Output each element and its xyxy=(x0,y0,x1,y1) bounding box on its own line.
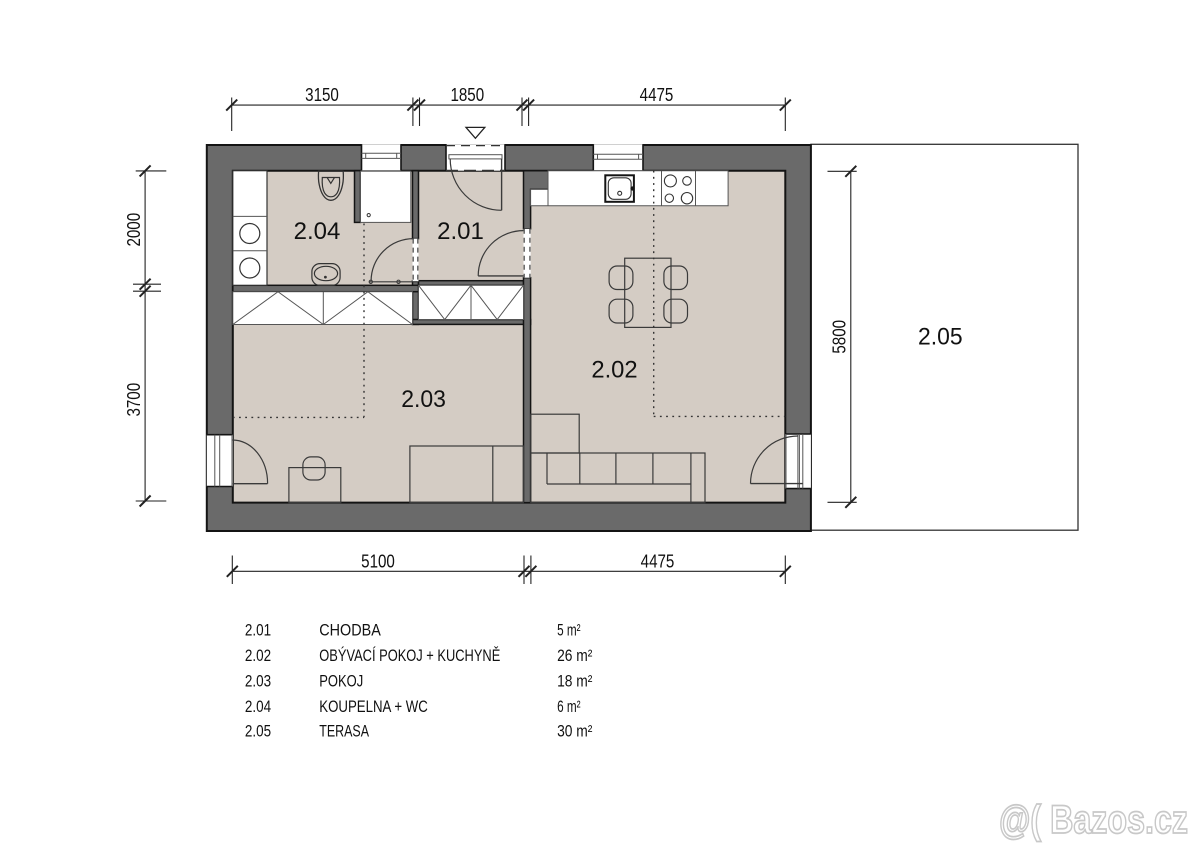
svg-text:3700: 3700 xyxy=(124,383,144,417)
svg-text:2.03: 2.03 xyxy=(401,386,446,413)
svg-text:2.01: 2.01 xyxy=(437,218,484,245)
svg-text:2.04: 2.04 xyxy=(245,698,271,716)
svg-text:2000: 2000 xyxy=(124,213,144,247)
svg-text:OBÝVACÍ POKOJ + KUCHYNĚ: OBÝVACÍ POKOJ + KUCHYNĚ xyxy=(319,646,500,665)
svg-text:1850: 1850 xyxy=(450,85,484,105)
svg-text:3150: 3150 xyxy=(305,85,339,105)
svg-text:6 m²: 6 m² xyxy=(557,698,581,716)
svg-text:2.04: 2.04 xyxy=(294,218,341,245)
svg-text:@( Bazos.cz: @( Bazos.cz xyxy=(999,798,1188,842)
svg-text:2.02: 2.02 xyxy=(245,647,271,665)
svg-text:CHODBA: CHODBA xyxy=(319,622,381,640)
svg-text:2.02: 2.02 xyxy=(591,356,637,383)
svg-text:KOUPELNA + WC: KOUPELNA + WC xyxy=(319,698,428,716)
svg-text:5100: 5100 xyxy=(361,551,395,571)
svg-text:POKOJ: POKOJ xyxy=(319,673,363,691)
svg-text:4475: 4475 xyxy=(641,551,675,571)
svg-text:18 m²: 18 m² xyxy=(557,673,593,691)
svg-text:26 m²: 26 m² xyxy=(557,647,593,665)
svg-text:4475: 4475 xyxy=(640,85,674,105)
svg-text:5800: 5800 xyxy=(829,320,849,354)
svg-text:2.03: 2.03 xyxy=(245,673,271,691)
svg-text:30 m²: 30 m² xyxy=(557,723,593,741)
svg-text:2.05: 2.05 xyxy=(918,324,963,351)
svg-text:2.01: 2.01 xyxy=(245,622,271,640)
svg-text:TERASA: TERASA xyxy=(319,723,369,741)
svg-text:5 m²: 5 m² xyxy=(557,622,581,640)
svg-text:2.05: 2.05 xyxy=(245,723,271,741)
